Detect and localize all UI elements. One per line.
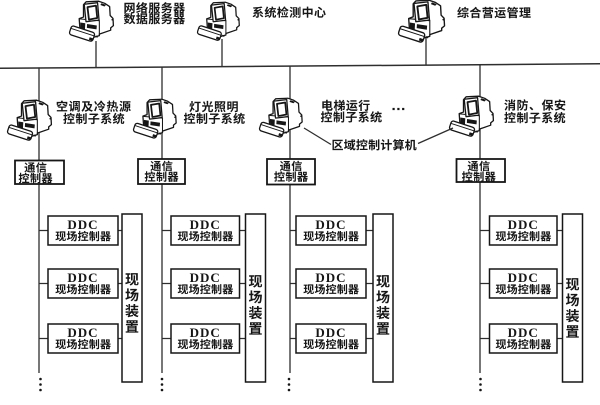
- svg-text:DDC: DDC: [508, 270, 539, 285]
- svg-text:DDC: DDC: [67, 217, 98, 232]
- svg-text:DDC: DDC: [67, 270, 98, 285]
- svg-text:DDC: DDC: [315, 270, 346, 285]
- svg-text:DDC: DDC: [508, 325, 539, 340]
- svg-text:DDC: DDC: [190, 270, 221, 285]
- svg-text:DDC: DDC: [315, 325, 346, 340]
- svg-text:DDC: DDC: [190, 217, 221, 232]
- svg-text:DDC: DDC: [67, 325, 98, 340]
- svg-text:DDC: DDC: [508, 217, 539, 232]
- svg-text:DDC: DDC: [190, 325, 221, 340]
- svg-text:DDC: DDC: [315, 217, 346, 232]
